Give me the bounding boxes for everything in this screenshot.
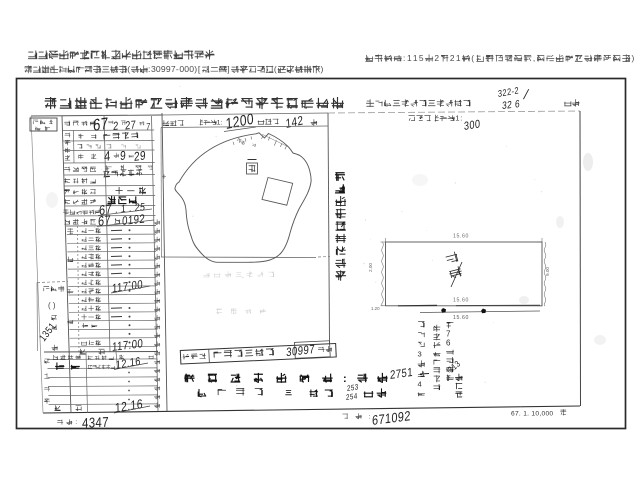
svg-text:(: ( <box>127 64 130 74</box>
svg-text:9.00: 9.00 <box>545 267 550 276</box>
svg-text:2751: 2751 <box>390 366 413 382</box>
svg-text:15.60: 15.60 <box>453 234 469 240</box>
svg-text:7: 7 <box>446 330 451 339</box>
svg-text:15.60: 15.60 <box>453 315 469 321</box>
svg-text:(: ( <box>274 64 277 74</box>
svg-text:): ) <box>194 64 197 74</box>
svg-text:6: 6 <box>446 338 451 347</box>
svg-text:142: 142 <box>285 114 304 131</box>
svg-text:117.00: 117.00 <box>112 278 143 296</box>
svg-text:5: 5 <box>419 53 424 63</box>
svg-text:(: ( <box>471 53 474 63</box>
svg-text:2: 2 <box>450 53 455 63</box>
svg-text:): ) <box>321 64 324 74</box>
svg-text::: : <box>460 114 462 123</box>
svg-text:1.20: 1.20 <box>371 306 380 311</box>
svg-text:0192: 0192 <box>122 213 145 229</box>
svg-text:67: 67 <box>93 114 109 135</box>
svg-text:322-2: 322-2 <box>498 84 519 99</box>
svg-text:( ): ( ) <box>48 301 56 310</box>
svg-text:[: [ <box>198 64 201 74</box>
svg-text::: : <box>75 419 77 426</box>
svg-text:254: 254 <box>346 392 358 402</box>
svg-text:1: 1 <box>455 114 459 123</box>
svg-text:9: 9 <box>120 149 126 163</box>
svg-text:27: 27 <box>125 120 136 133</box>
svg-text:671092: 671092 <box>372 408 411 428</box>
svg-text:]: ] <box>227 64 229 74</box>
svg-text::: : <box>221 120 223 127</box>
svg-text:4: 4 <box>418 379 422 388</box>
svg-text:,: , <box>533 53 535 63</box>
svg-text::: : <box>343 373 347 385</box>
svg-text:3: 3 <box>418 350 422 359</box>
svg-text:32 6: 32 6 <box>502 98 520 112</box>
svg-text:): ) <box>632 53 635 63</box>
svg-text:7: 7 <box>146 121 151 133</box>
svg-text:67: 67 <box>98 212 111 229</box>
svg-text:1: 1 <box>407 53 412 63</box>
svg-text:4: 4 <box>104 148 111 164</box>
svg-text:67. 1. 10,000: 67. 1. 10,000 <box>511 411 553 418</box>
svg-text:29: 29 <box>134 149 146 164</box>
svg-text:/: / <box>522 86 530 102</box>
svg-text::: : <box>369 413 371 420</box>
svg-text:30997: 30997 <box>286 343 315 360</box>
svg-text:15.60: 15.60 <box>453 298 469 304</box>
svg-text::: : <box>403 53 405 63</box>
svg-text:300: 300 <box>464 119 481 134</box>
svg-text:1: 1 <box>456 53 461 63</box>
svg-text:1: 1 <box>413 53 418 63</box>
svg-text:2.00: 2.00 <box>368 263 373 272</box>
svg-text:2: 2 <box>113 121 119 134</box>
svg-text:4347: 4347 <box>82 413 109 431</box>
svg-text:2: 2 <box>434 53 439 63</box>
svg-text:12.16: 12.16 <box>115 396 143 416</box>
